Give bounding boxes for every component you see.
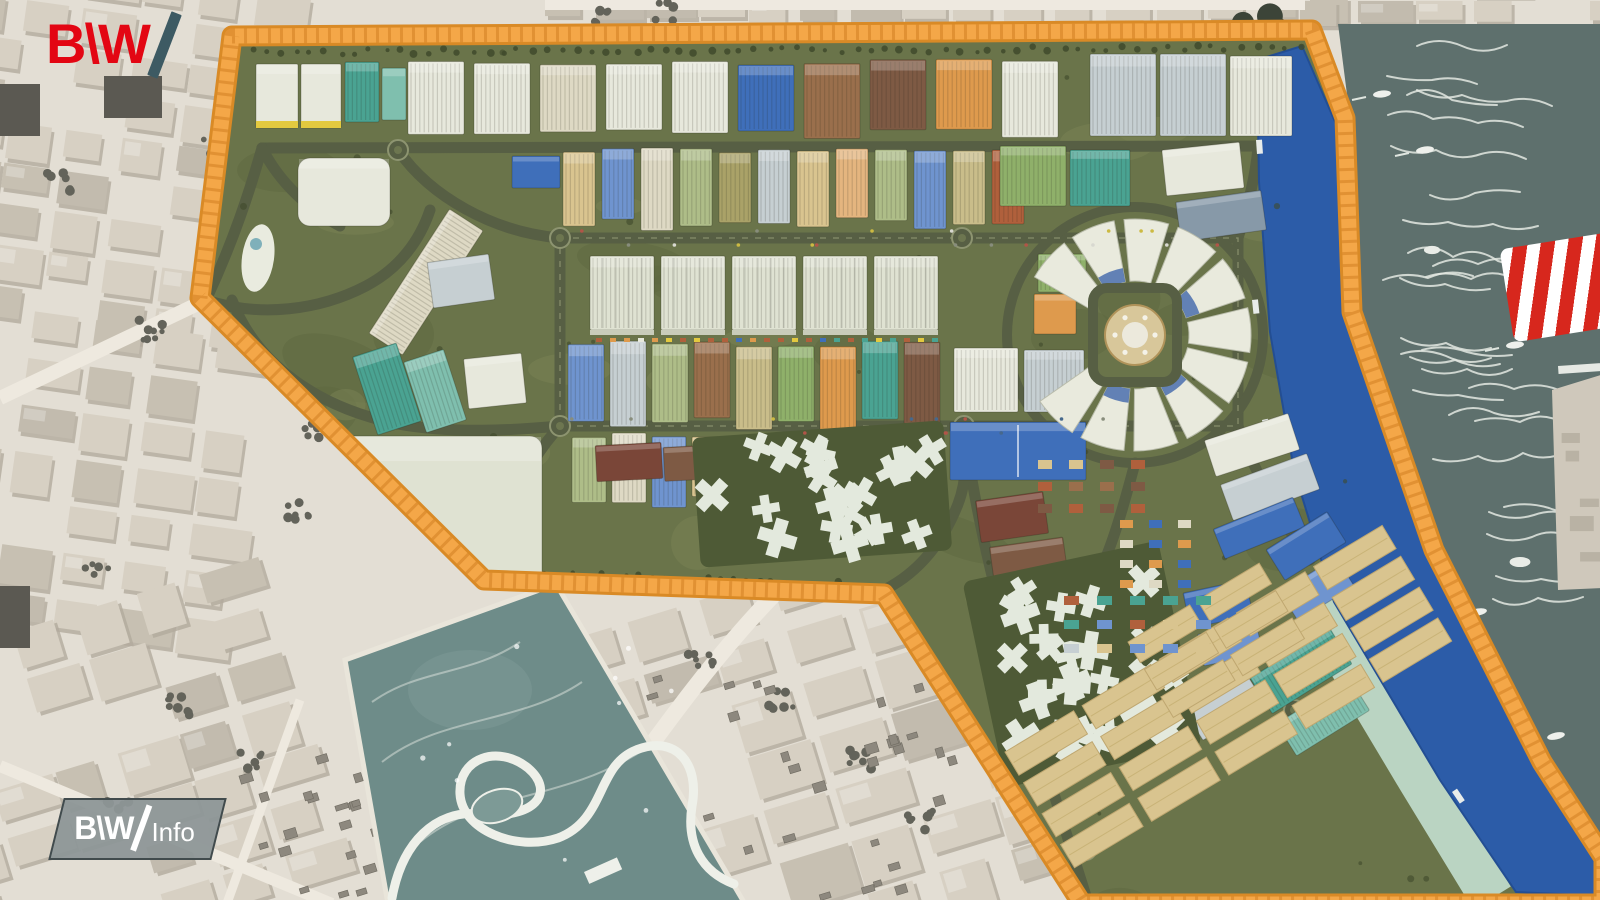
tree (590, 49, 595, 54)
tree (656, 0, 663, 7)
car (935, 417, 939, 421)
zone-building (1160, 54, 1226, 136)
container-stack (1131, 504, 1145, 513)
car (1101, 417, 1105, 421)
market-stall (806, 338, 812, 342)
zone-building (540, 65, 596, 132)
tree (105, 565, 111, 571)
tree (794, 44, 800, 50)
tree (365, 46, 370, 51)
roof-highlight (805, 65, 859, 75)
tree (173, 703, 183, 713)
tree (1238, 44, 1245, 51)
tree (1208, 43, 1213, 48)
tree (1029, 43, 1035, 49)
container-stack (1149, 540, 1162, 548)
market-stall (652, 338, 658, 342)
zone-building (836, 149, 868, 218)
tree (857, 370, 861, 374)
tree (144, 325, 153, 334)
roof-highlight (662, 257, 724, 267)
tree (926, 49, 932, 55)
market-stall (918, 338, 924, 342)
market-stall (778, 338, 784, 342)
roof-highlight (1071, 151, 1129, 159)
market-stall (680, 338, 686, 342)
roof-highlight (779, 347, 813, 358)
tree (750, 46, 756, 52)
car (1107, 229, 1111, 233)
container-stack (1196, 596, 1211, 605)
city-building (101, 260, 154, 300)
roof-highlight (603, 150, 633, 160)
container-stack (1163, 644, 1178, 653)
sea-foam (1424, 246, 1440, 254)
market-stall (862, 338, 868, 342)
roof-highlight (163, 271, 182, 287)
container-stack (1100, 504, 1114, 513)
tree (634, 49, 641, 56)
tree (560, 47, 565, 52)
tree (158, 320, 167, 329)
city-building (201, 430, 245, 473)
roof-highlight (837, 150, 867, 160)
container-stack (1100, 460, 1114, 469)
park-pond (408, 650, 532, 730)
city-building (128, 515, 170, 547)
car (771, 417, 775, 421)
car (627, 243, 631, 247)
tree (1255, 43, 1262, 50)
tree (809, 46, 815, 52)
zone-building (820, 347, 856, 431)
tree (1358, 861, 1362, 865)
channel-logo: B\W (46, 16, 170, 79)
container-stack (1196, 620, 1211, 629)
city-building (1474, 1, 1512, 22)
dark-building (0, 586, 30, 648)
zone-building (301, 64, 341, 128)
tree (652, 16, 660, 24)
park-dot (455, 778, 460, 783)
tree (243, 763, 253, 773)
zone-building (464, 353, 527, 409)
far-building (1566, 451, 1580, 462)
container-stack (1130, 620, 1145, 629)
park-dot (669, 689, 674, 694)
zone-pond (250, 238, 262, 250)
boat (1256, 140, 1263, 154)
zone-building (652, 344, 688, 423)
tree (920, 825, 930, 835)
tree (708, 658, 716, 666)
broadcast-frame: B\W B\W Info (0, 0, 1600, 900)
zone-building (778, 346, 814, 421)
tree (735, 48, 741, 54)
container-stack (1178, 540, 1191, 548)
tree (605, 8, 612, 15)
info-badge-logo-text: B\W (74, 810, 133, 847)
tree (283, 513, 293, 523)
tree (487, 49, 495, 57)
roundabout-island (556, 234, 564, 242)
car (1215, 243, 1219, 247)
tree (840, 50, 845, 55)
roof-highlight (1003, 62, 1057, 73)
market-stall (820, 338, 826, 342)
market-stall (708, 338, 714, 342)
park-dot (447, 742, 451, 746)
roof-highlight (124, 141, 142, 156)
market-stall (736, 338, 742, 342)
tree (1282, 46, 1287, 51)
container-stack (1149, 560, 1162, 568)
car (1091, 243, 1095, 247)
park-dot (420, 755, 425, 760)
car (944, 431, 948, 435)
far-building (1580, 499, 1599, 507)
tree (159, 329, 164, 334)
tree (591, 340, 595, 344)
zone-building (345, 62, 379, 122)
container-stack (1131, 460, 1145, 469)
tree (201, 137, 207, 143)
roof-highlight (1001, 147, 1065, 155)
roof-highlight (759, 151, 789, 161)
container-stack (1178, 580, 1191, 588)
container-stack (1064, 596, 1079, 605)
car (810, 243, 814, 247)
market-stall (722, 338, 728, 342)
plaza-dot (1112, 332, 1117, 337)
container-stack (1120, 520, 1133, 528)
tree (1064, 75, 1069, 80)
tree (91, 571, 98, 578)
market-stall (750, 338, 756, 342)
tree (1165, 44, 1170, 49)
roof-highlight (863, 342, 897, 353)
zone-building (606, 64, 662, 130)
tree (1274, 203, 1280, 209)
zone-building (875, 150, 907, 221)
roof-highlight (541, 66, 595, 75)
market-stall (666, 338, 672, 342)
far-building (1570, 516, 1594, 531)
hall-canopy (661, 330, 725, 335)
zone-building (954, 348, 1018, 412)
tree (314, 433, 324, 443)
zone-building (563, 152, 595, 226)
roof-highlight (1231, 57, 1291, 68)
tree (240, 203, 247, 210)
tree (668, 2, 678, 12)
zone-building (975, 491, 1048, 542)
zone-building (936, 59, 992, 129)
zone-building (256, 64, 298, 128)
plaza-dot (1142, 315, 1147, 320)
city-building (0, 544, 53, 590)
roof-highlight (475, 64, 529, 74)
tree (410, 50, 418, 58)
zone-building (610, 341, 646, 426)
car (673, 243, 677, 247)
tree (1194, 42, 1202, 50)
roundabout-island (394, 146, 402, 154)
tree (1001, 49, 1006, 54)
tree (94, 562, 103, 571)
zone-building (1002, 61, 1058, 137)
tree (708, 47, 716, 55)
tree (306, 50, 311, 55)
zone-building (758, 150, 790, 224)
roof-highlight (681, 150, 711, 161)
roof-highlight (798, 152, 828, 163)
info-badge-slash-icon (130, 804, 152, 851)
market-stall (932, 338, 938, 342)
roof-highlight (871, 61, 925, 71)
city-building (153, 329, 204, 370)
park-dot (563, 858, 567, 862)
info-badge-inner: B\W Info (74, 804, 195, 852)
zone-building (803, 256, 867, 335)
roof-highlight (937, 60, 991, 70)
hall-canopy (803, 330, 867, 335)
tree (66, 185, 74, 193)
tree (236, 749, 244, 757)
zone-building (298, 158, 390, 226)
tree (295, 498, 304, 507)
roof-highlight (695, 343, 729, 354)
roof-highlight (613, 434, 645, 444)
tree (544, 46, 551, 53)
roof-highlight (65, 556, 83, 569)
tree (1182, 48, 1187, 53)
container-stack (1038, 482, 1052, 491)
container-stack (1178, 560, 1191, 568)
tree (1407, 875, 1414, 882)
tree (906, 816, 914, 824)
tree (185, 708, 193, 716)
tree (1298, 44, 1304, 50)
car (1060, 417, 1064, 421)
roof-highlight (720, 153, 750, 163)
tree (684, 650, 693, 659)
zone-building (694, 342, 730, 418)
tree (152, 335, 158, 341)
tree (58, 168, 68, 178)
zone-building (602, 149, 634, 219)
zone-road (262, 146, 1302, 148)
roof-highlight (955, 349, 1017, 358)
roof-highlight (1091, 55, 1155, 66)
tree (595, 6, 605, 16)
channel-logo-text: B\W (46, 16, 149, 72)
city-building (85, 367, 132, 405)
car (963, 417, 967, 421)
container-stack (1120, 560, 1133, 568)
zone-building (590, 256, 654, 335)
container-stack (1038, 460, 1052, 469)
car (999, 431, 1003, 435)
car (570, 417, 574, 421)
tree (320, 47, 327, 54)
city-model-scene (0, 0, 1600, 900)
zone-building (870, 60, 926, 130)
tree (1075, 47, 1080, 52)
market-stall (610, 338, 616, 342)
city-building (72, 460, 122, 504)
market-stall (834, 338, 840, 342)
zone-building (738, 65, 794, 131)
tree (530, 47, 538, 55)
roof-highlight (1161, 55, 1225, 66)
tree (663, 47, 670, 54)
car (1165, 243, 1169, 247)
tree (779, 702, 789, 712)
roof-highlight (733, 257, 795, 267)
tree (1134, 46, 1141, 53)
info-badge: B\W Info (48, 798, 226, 860)
zone-building (641, 148, 673, 230)
dark-building (104, 76, 162, 118)
tree (975, 50, 979, 54)
tree (895, 46, 903, 54)
market-stall (848, 338, 854, 342)
tree (302, 425, 309, 432)
roof-highlight (954, 152, 984, 162)
car (1024, 243, 1028, 247)
tree (869, 48, 875, 54)
tree (1097, 812, 1101, 816)
car (910, 417, 914, 421)
tree (689, 49, 697, 57)
tree (769, 47, 774, 52)
zone-building (1034, 294, 1076, 334)
tree (615, 49, 621, 55)
roof-highlight (1361, 4, 1383, 13)
tree (956, 48, 964, 56)
container-stack (1163, 620, 1178, 629)
tree (285, 502, 292, 509)
tree (823, 48, 827, 52)
tree (440, 45, 447, 52)
car (1150, 229, 1154, 233)
market-stall (904, 338, 910, 342)
zone-building (953, 151, 985, 225)
container-stack (1130, 644, 1145, 653)
fan-center-monument (1122, 322, 1148, 348)
city-building (1590, 1, 1600, 20)
roof-highlight (513, 157, 559, 161)
container-stack (1097, 620, 1112, 629)
zone-building (1230, 56, 1292, 136)
city-building (50, 211, 98, 254)
car (755, 229, 759, 233)
roof-highlight (591, 257, 653, 267)
market-stall (694, 338, 700, 342)
roof-highlight (1419, 4, 1438, 12)
tree (453, 49, 459, 55)
tree (386, 48, 390, 52)
roof-highlight (653, 345, 687, 356)
tree (258, 751, 264, 757)
tree (944, 47, 949, 52)
car (990, 243, 994, 247)
roof-highlight (876, 151, 906, 161)
zone-building (914, 151, 946, 229)
tree (1119, 43, 1126, 50)
roof-highlight (564, 153, 594, 163)
sea-foam (1510, 557, 1531, 567)
car (954, 243, 958, 247)
zone-building (950, 422, 1086, 480)
city-building (146, 375, 198, 420)
tree (1269, 44, 1275, 50)
zone-building (804, 64, 860, 139)
zone-building (1070, 150, 1130, 206)
roof-highlight (642, 149, 672, 161)
far-building (1580, 552, 1600, 561)
container-stack (1064, 644, 1079, 653)
container-stack (1149, 580, 1162, 588)
container-stack (1100, 482, 1114, 491)
tree (781, 688, 790, 697)
roof-highlight (346, 63, 378, 71)
tree (910, 47, 917, 54)
tree (647, 46, 654, 53)
tree (790, 704, 795, 709)
tree (426, 51, 432, 57)
zone-building (595, 442, 663, 481)
tree (859, 758, 867, 766)
zone-building (661, 256, 725, 335)
market-stall (876, 338, 882, 342)
tree (1013, 47, 1021, 55)
roof-highlight (302, 65, 340, 74)
city-building (78, 413, 130, 457)
container-stack (1069, 504, 1083, 513)
building-shadow (1477, 0, 1535, 1)
roundabout-island (556, 422, 564, 430)
roundabout-island (958, 234, 966, 242)
park-dot (617, 701, 621, 705)
container-stack (1097, 596, 1112, 605)
roof-highlight (821, 348, 855, 360)
market-stall (890, 338, 896, 342)
container-stack (1069, 460, 1083, 469)
plaza-dot (1142, 350, 1147, 355)
roof-highlight (383, 69, 405, 76)
info-badge-label: Info (151, 817, 194, 848)
car (815, 243, 819, 247)
tree (264, 49, 269, 54)
roof-highlight (804, 257, 866, 267)
tree (881, 45, 887, 51)
tree (251, 47, 257, 53)
tree (986, 560, 991, 565)
tree (295, 49, 300, 54)
tree (847, 760, 853, 766)
zone-building (736, 347, 772, 430)
zone-building (862, 341, 898, 419)
tree (305, 512, 312, 519)
container-stack (1097, 644, 1112, 653)
roof-highlight (875, 257, 937, 267)
zone-building (568, 344, 604, 421)
tree (167, 692, 174, 699)
plaza-dot (1122, 315, 1127, 320)
roof-highlight (299, 159, 389, 169)
